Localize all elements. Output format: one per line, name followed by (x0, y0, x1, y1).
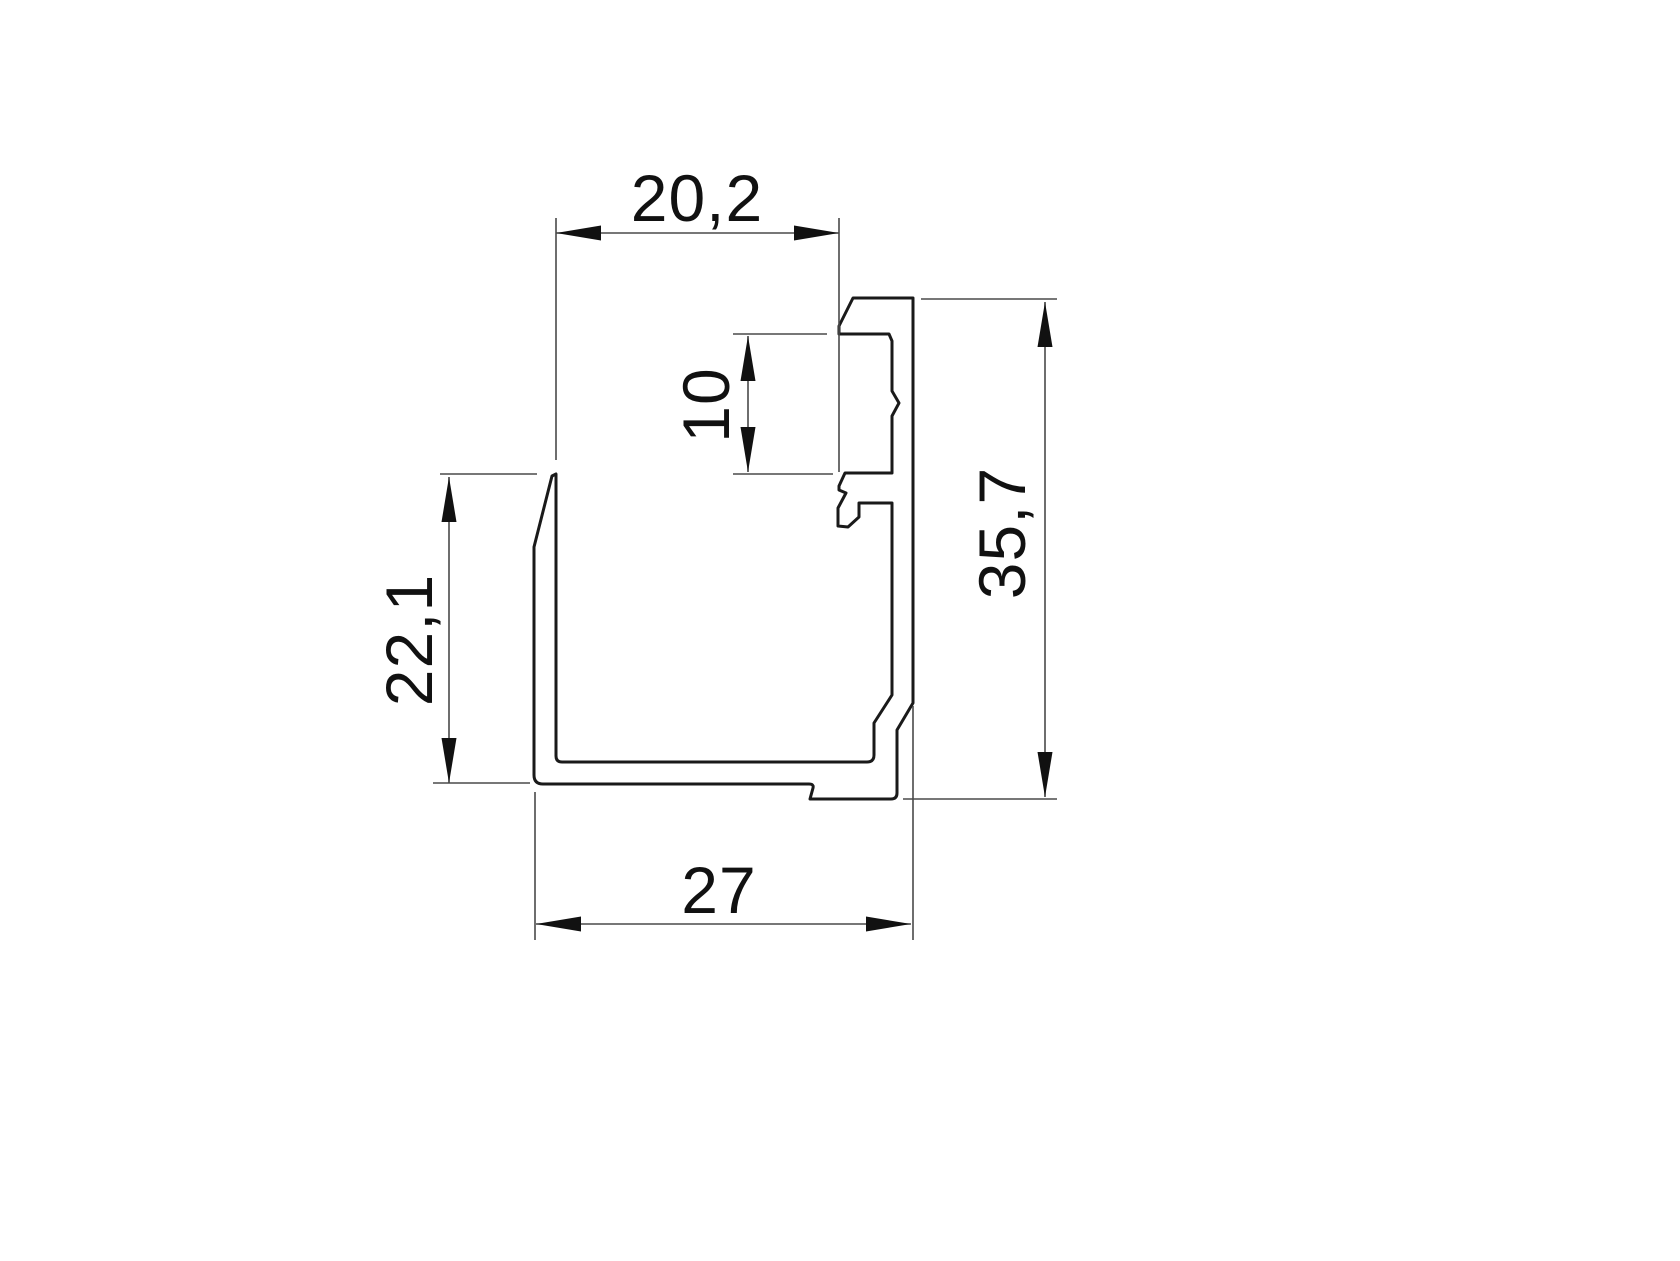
arrowhead-up-icon (442, 477, 457, 522)
arrowhead-left-icon (536, 917, 581, 932)
arrowhead-down-icon (1038, 752, 1053, 797)
arrowhead-up-icon (1038, 302, 1053, 347)
arrowhead-left-icon (556, 226, 601, 241)
dimension-overall-height: 35,7 (903, 299, 1057, 799)
dimension-label-front-wall-height: 22,1 (372, 574, 446, 706)
dimension-bead-groove-height: 10 (669, 334, 833, 474)
dimension-front-wall-height: 22,1 (372, 474, 537, 783)
dimension-label-overall-height: 35,7 (965, 467, 1039, 599)
drawing-stage: 20,2 10 35,7 22,1 (0, 0, 1680, 1261)
dimension-label-top-opening-width: 20,2 (631, 161, 763, 235)
dimension-label-overall-width: 27 (681, 853, 756, 927)
arrowhead-right-icon (866, 917, 911, 932)
dimension-label-bead-groove-height: 10 (669, 367, 743, 442)
technical-drawing-canvas: 20,2 10 35,7 22,1 (0, 0, 1680, 1261)
dimension-overall-width: 27 (535, 706, 913, 940)
arrowhead-down-icon (442, 738, 457, 783)
arrowhead-right-icon (794, 226, 839, 241)
